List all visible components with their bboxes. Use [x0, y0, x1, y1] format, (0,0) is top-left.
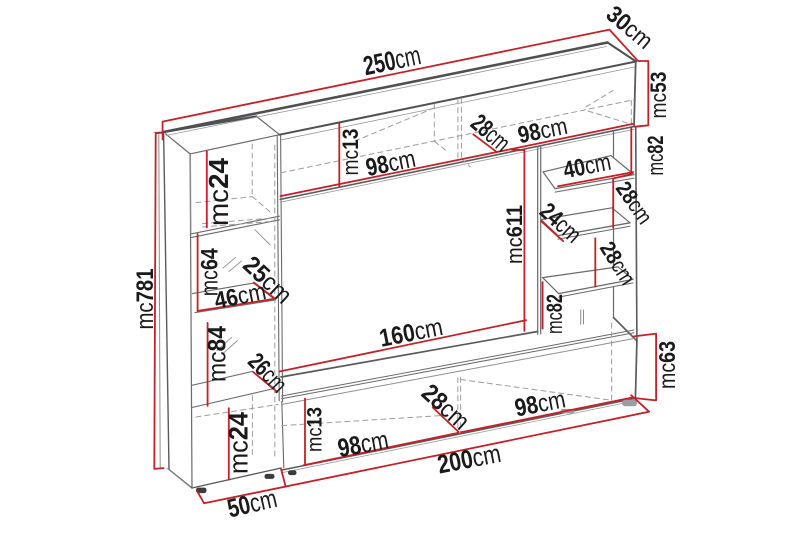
- svg-text:mc13: mc13: [338, 129, 363, 176]
- svg-text:mc13: mc13: [304, 407, 327, 452]
- svg-text:mc82: mc82: [542, 294, 567, 334]
- svg-text:mc781: mc781: [132, 269, 159, 330]
- svg-text:mc82: mc82: [643, 136, 668, 176]
- svg-text:mc53: mc53: [646, 72, 671, 119]
- svg-text:mc84: mc84: [203, 326, 231, 382]
- svg-text:mc24: mc24: [224, 412, 254, 474]
- svg-text:mc63: mc63: [654, 341, 680, 389]
- svg-text:mc24: mc24: [203, 158, 234, 226]
- svg-text:mc611: mc611: [502, 205, 527, 264]
